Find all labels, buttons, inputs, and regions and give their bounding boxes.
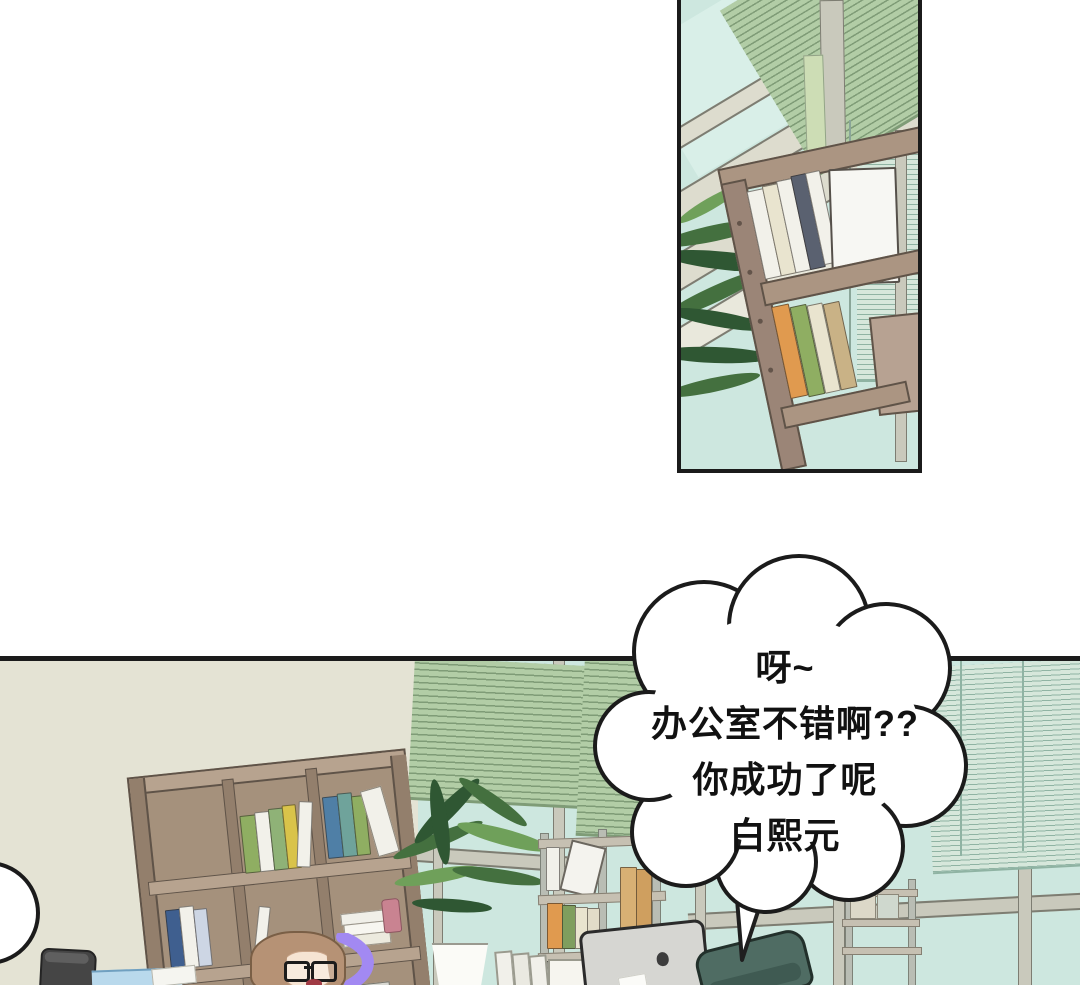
- bubble-line: 呀~: [585, 640, 985, 696]
- rack-bar: [842, 919, 920, 927]
- glasses-left-lens: [284, 961, 310, 982]
- book-spine: [547, 903, 563, 949]
- speech-bubble-text: 呀~ 办公室不错啊?? 你成功了呢 白熙元: [585, 640, 985, 864]
- purple-cable-arc: [328, 933, 392, 985]
- blind-cord: [1022, 661, 1024, 851]
- sticky-note: [618, 973, 649, 985]
- wall-clock: [0, 861, 40, 965]
- desk-organizer: [528, 954, 549, 985]
- binder: [620, 867, 637, 929]
- binder: [636, 869, 652, 929]
- bin-lid: [44, 952, 88, 964]
- bubble-line: 白熙元: [585, 808, 985, 864]
- glasses-bridge: [304, 966, 311, 969]
- flashback-bookshelf-panel: [677, 0, 922, 473]
- bubble-line: 你成功了呢: [585, 752, 985, 808]
- trash-bin: [39, 948, 97, 985]
- rack-box: [877, 894, 899, 919]
- white-tray-box: [548, 959, 586, 985]
- bubble-line: 办公室不错啊??: [585, 696, 985, 752]
- rack-bar: [842, 947, 922, 955]
- shelf-top-face: [129, 751, 405, 796]
- paper-sheet: [151, 965, 197, 985]
- pink-vase: [381, 898, 402, 934]
- apple-logo: [656, 952, 669, 967]
- window-mullion: [1018, 861, 1032, 985]
- book-spine: [546, 847, 560, 891]
- book-spine: [562, 905, 576, 949]
- book-spine: [297, 801, 313, 867]
